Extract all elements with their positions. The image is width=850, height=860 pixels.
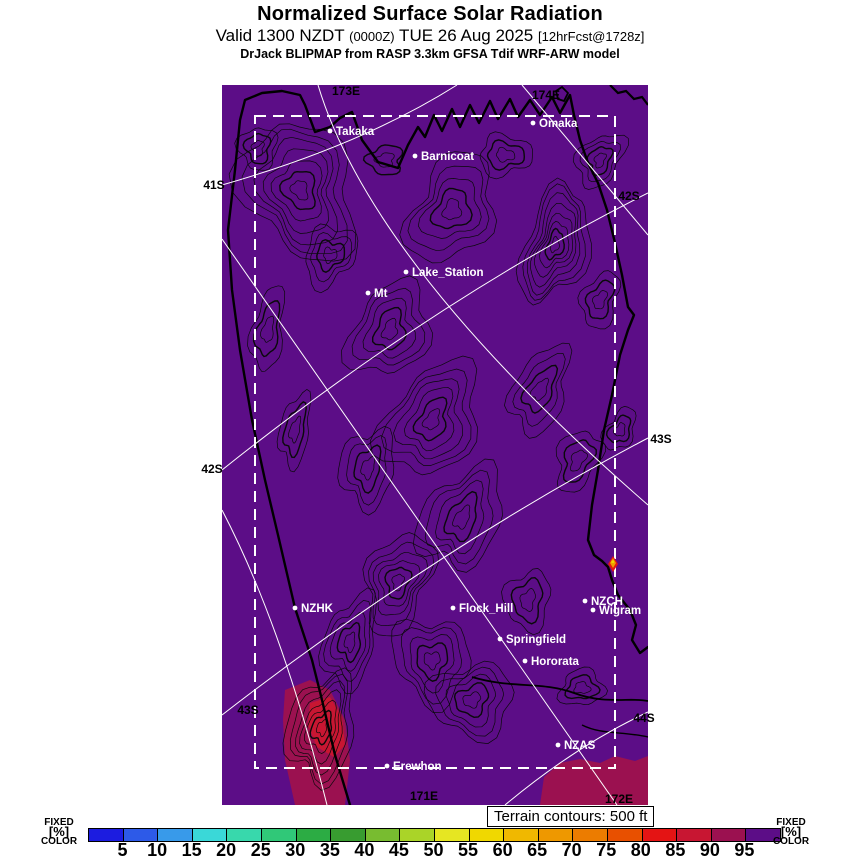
station-label: NZHK (301, 603, 334, 615)
colorbar-tick: 75 (596, 840, 616, 860)
valid-date: TUE 26 Aug 2025 (395, 26, 538, 45)
map-canvas: TakakaBarnicoatOmakaLake_StationMtNZHKFl… (222, 85, 648, 805)
color-label: COLOR (764, 838, 818, 846)
colorbar-tick: 35 (320, 840, 340, 860)
colorbar-ticks: 5101520253035404550556065707580859095 (88, 840, 779, 860)
colorbar-tick: 85 (665, 840, 685, 860)
plot-valid-line: Valid 1300 NZDT (0000Z) TUE 26 Aug 2025 … (10, 26, 850, 46)
latlon-label: 172E (605, 792, 633, 806)
color-label: COLOR (32, 838, 86, 846)
colorbar-tick: 25 (251, 840, 271, 860)
colorbar-tick: 10 (147, 840, 167, 860)
colorbar-tick: 5 (118, 840, 128, 860)
terrain-contours-note: Terrain contours: 500 ft (487, 806, 654, 827)
station-label: Flock_Hill (459, 603, 513, 615)
station-dot (556, 743, 561, 748)
valid-fcst: [12hrFcst@1728z] (538, 29, 644, 44)
station-label: Wigram (599, 605, 641, 617)
colorbar-tick: 50 (423, 840, 443, 860)
plot-header: Normalized Surface Solar Radiation Valid… (10, 3, 850, 61)
latlon-label: 43S (237, 703, 258, 717)
station-label: Takaka (336, 126, 375, 138)
latlon-label: 43S (650, 432, 671, 446)
colorbar-tick: 70 (562, 840, 582, 860)
colorbar-tick: 40 (354, 840, 374, 860)
station-dot (413, 154, 418, 159)
colorbar-tick: 65 (527, 840, 547, 860)
latlon-label: 42S (618, 189, 639, 203)
station-label: Barnicoat (421, 151, 474, 163)
station-dot (451, 606, 456, 611)
colorbar-tick: 90 (700, 840, 720, 860)
station-label: Omaka (539, 118, 578, 130)
colorbar-right-caption: FIXED [%] COLOR (764, 819, 818, 846)
colorbar-tick: 45 (389, 840, 409, 860)
station-label: Lake_Station (412, 267, 484, 279)
station-dot (523, 659, 528, 664)
latlon-label: 171E (410, 789, 438, 803)
latlon-label: 42S (201, 462, 222, 476)
latlon-label: 173E (332, 84, 360, 98)
station-label: Mt (374, 288, 388, 300)
latlon-label: 44S (633, 711, 654, 725)
station-dot (328, 129, 333, 134)
valid-zulu: (0000Z) (349, 29, 395, 44)
station-dot (531, 121, 536, 126)
station-dot (583, 599, 588, 604)
station-dot (293, 606, 298, 611)
station-label: Erewhon (393, 761, 442, 773)
station-dot (404, 270, 409, 275)
colorbar-left-caption: FIXED [%] COLOR (32, 819, 86, 846)
station-label: Springfield (506, 634, 566, 646)
latlon-label: 41S (203, 178, 224, 192)
colorbar-tick: 30 (285, 840, 305, 860)
colorbar-tick: 15 (182, 840, 202, 860)
colorbar-tick: 80 (631, 840, 651, 860)
valid-prefix: Valid 1300 NZDT (216, 26, 350, 45)
plot-model-line: DrJack BLIPMAP from RASP 3.3km GFSA Tdif… (10, 47, 850, 61)
station-dot (366, 291, 371, 296)
blipmap-plot-page: Normalized Surface Solar Radiation Valid… (0, 0, 850, 860)
station-dot (385, 764, 390, 769)
colorbar-tick: 60 (493, 840, 513, 860)
station-label: Hororata (531, 656, 580, 668)
colorbar-tick: 95 (734, 840, 754, 860)
station-label: NZAS (564, 740, 596, 752)
solar-radiation-map: TakakaBarnicoatOmakaLake_StationMtNZHKFl… (222, 85, 648, 805)
colorbar-tick: 55 (458, 840, 478, 860)
latlon-label: 174E (532, 88, 560, 102)
station-dot (591, 608, 596, 613)
plot-title: Normalized Surface Solar Radiation (10, 3, 850, 26)
station-dot (498, 637, 503, 642)
colorbar-tick: 20 (216, 840, 236, 860)
